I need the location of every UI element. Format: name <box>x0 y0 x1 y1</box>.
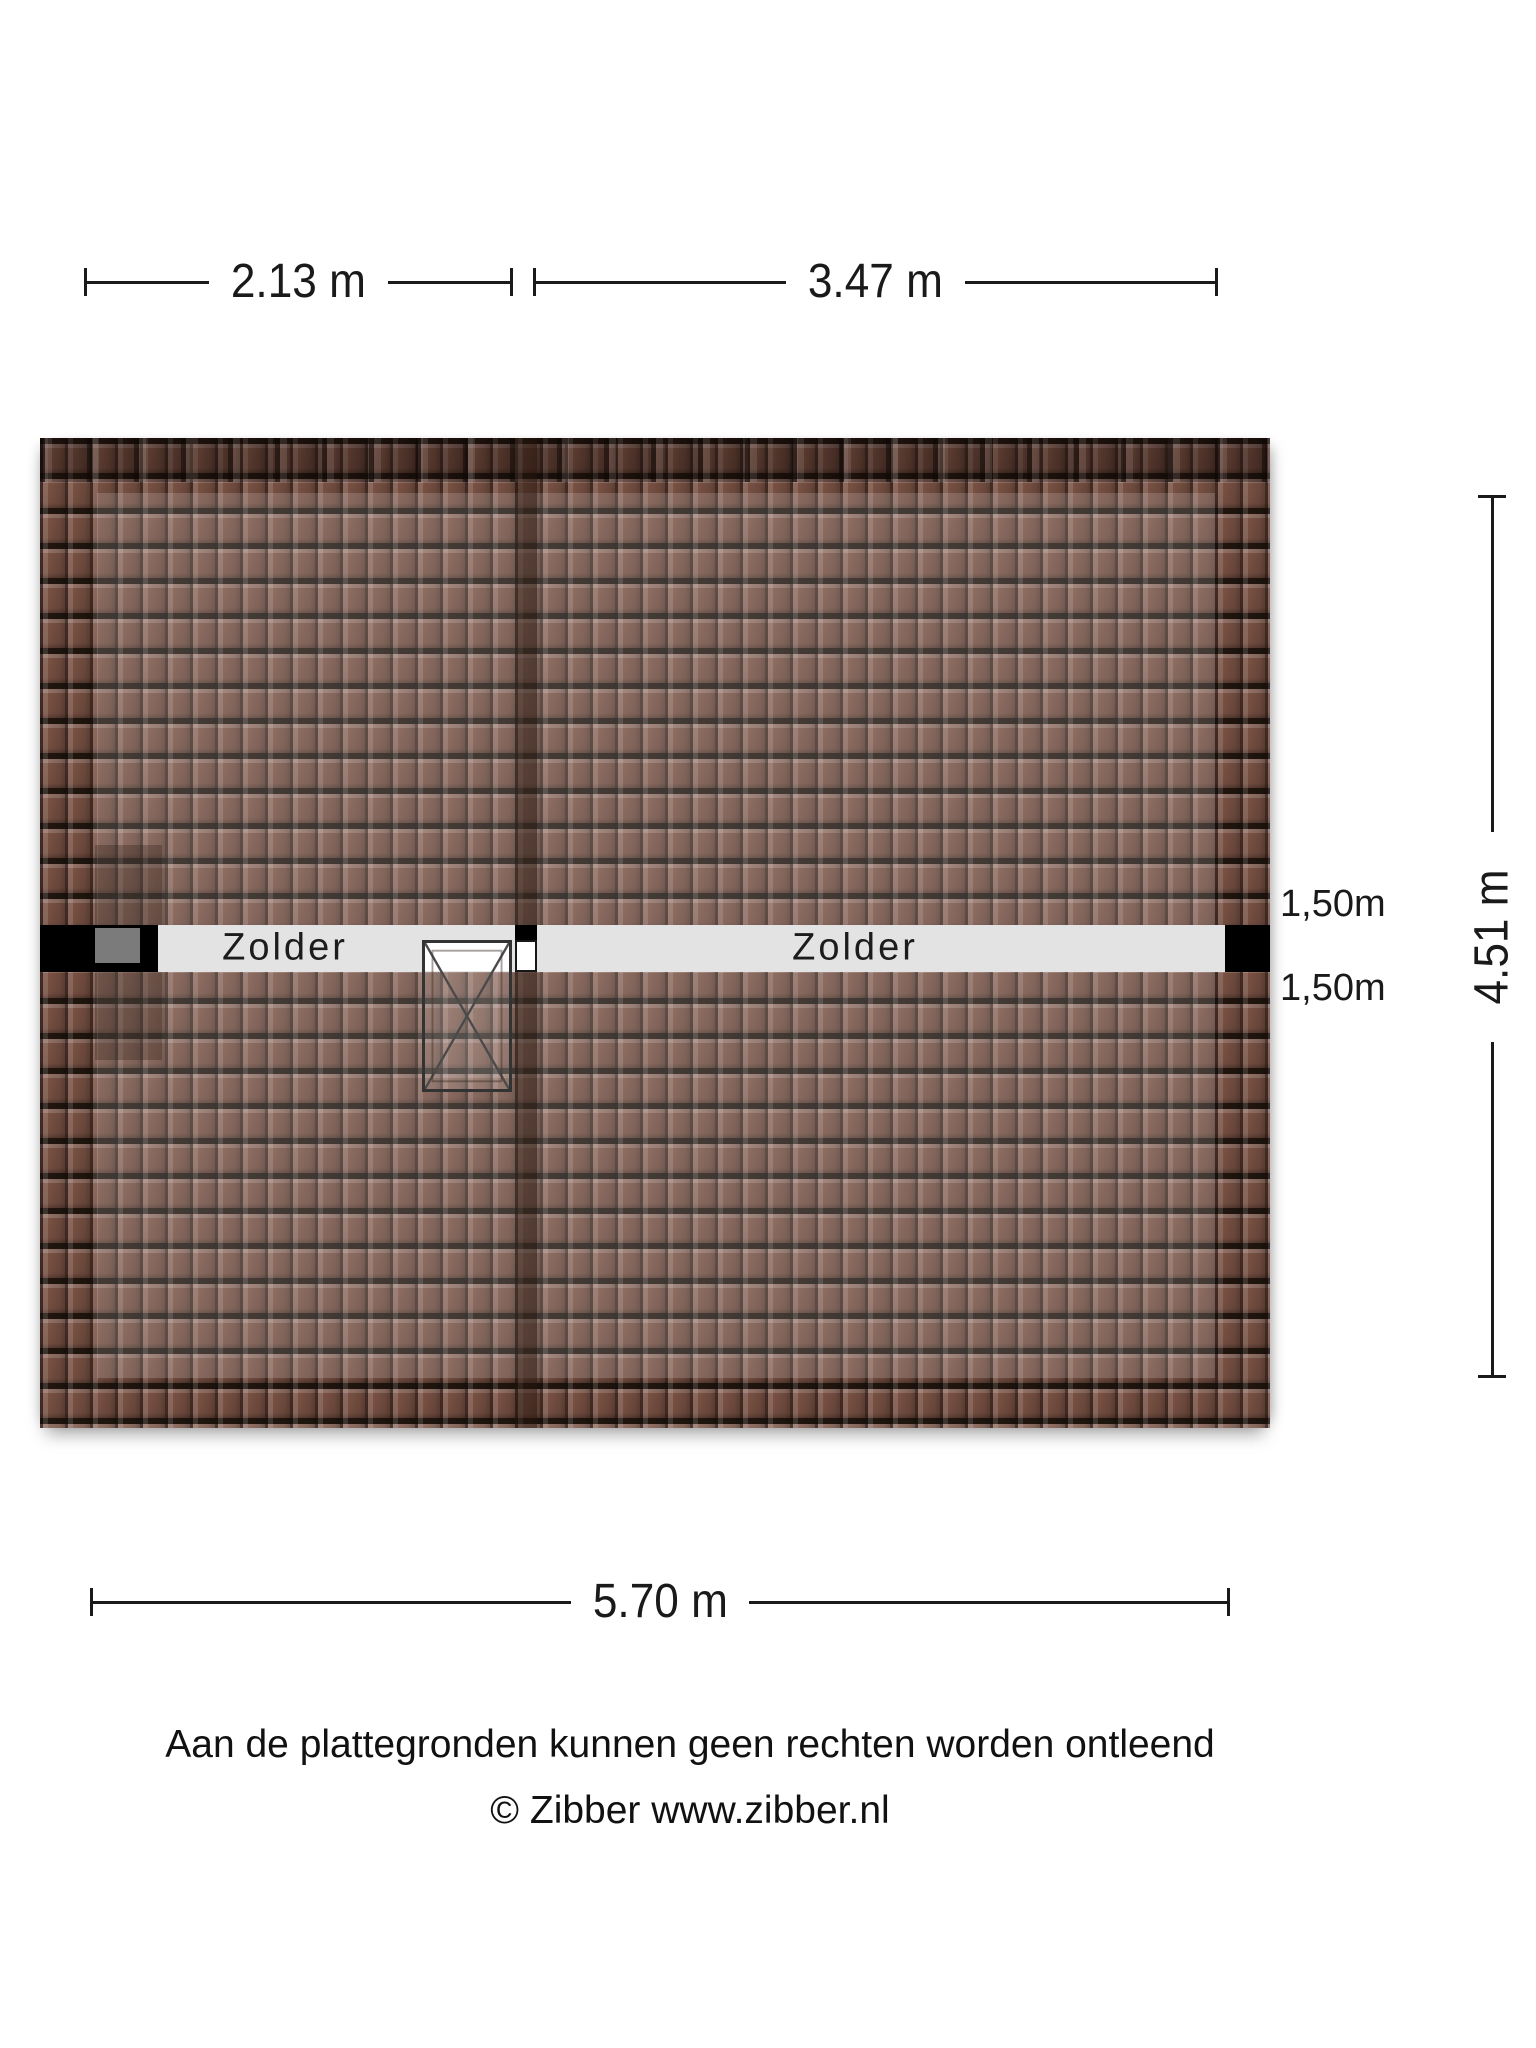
dimension-tick <box>1478 1375 1506 1378</box>
dimension-line <box>1491 1042 1494 1376</box>
dimension-label: 3.47 m <box>793 258 957 306</box>
dimension-tick <box>1215 268 1218 296</box>
room-label-right: Zolder <box>792 927 918 970</box>
dimension-label: 5.70 m <box>578 1578 742 1626</box>
dimension-line <box>93 1601 571 1604</box>
dimension-top-right: 3.47 m <box>533 258 1218 306</box>
skylight-window <box>422 940 512 1092</box>
dimension-label: 4.51 m <box>1468 869 1516 1004</box>
dimension-tick <box>1227 1588 1230 1616</box>
disclaimer-text: Aan de plattegronden kunnen geen rechten… <box>20 1712 1360 1778</box>
chimney <box>95 928 140 963</box>
roof-ridge <box>40 438 1270 482</box>
dimension-line <box>965 281 1215 284</box>
wall-segment-right <box>1225 925 1270 972</box>
window-cross-icon <box>425 943 509 1089</box>
dimension-line <box>536 281 786 284</box>
dimension-label: 2.13 m <box>216 258 380 306</box>
floorplan-page: 2.13 m 3.47 m Zolder Zolde <box>0 0 1536 2048</box>
chimney-shadow-lower <box>95 972 162 1060</box>
footer-disclaimer: Aan de plattegronden kunnen geen rechten… <box>20 1712 1360 1844</box>
room-label-left: Zolder <box>222 927 348 970</box>
copyright-text: © Zibber www.zibber.nl <box>20 1778 1360 1844</box>
dimension-bottom: 5.70 m <box>90 1578 1230 1626</box>
dimension-line <box>388 281 510 284</box>
dimension-tick <box>510 268 513 296</box>
dimension-line <box>87 281 209 284</box>
headroom-label-top: 1,50m <box>1280 884 1386 924</box>
dimension-line <box>749 1601 1227 1604</box>
wall-opening-center <box>515 940 537 972</box>
dimension-side: 4.51 m <box>1468 495 1516 1378</box>
dimension-label-wrap: 4.51 m <box>1419 832 1536 1042</box>
headroom-label-bottom: 1,50m <box>1280 968 1386 1008</box>
dimension-line <box>1491 498 1494 832</box>
dimension-top-left: 2.13 m <box>84 258 513 306</box>
roof-plan: Zolder Zolder <box>40 438 1270 1428</box>
wall-segment-center <box>515 925 537 940</box>
chimney-shadow-upper <box>95 845 162 925</box>
